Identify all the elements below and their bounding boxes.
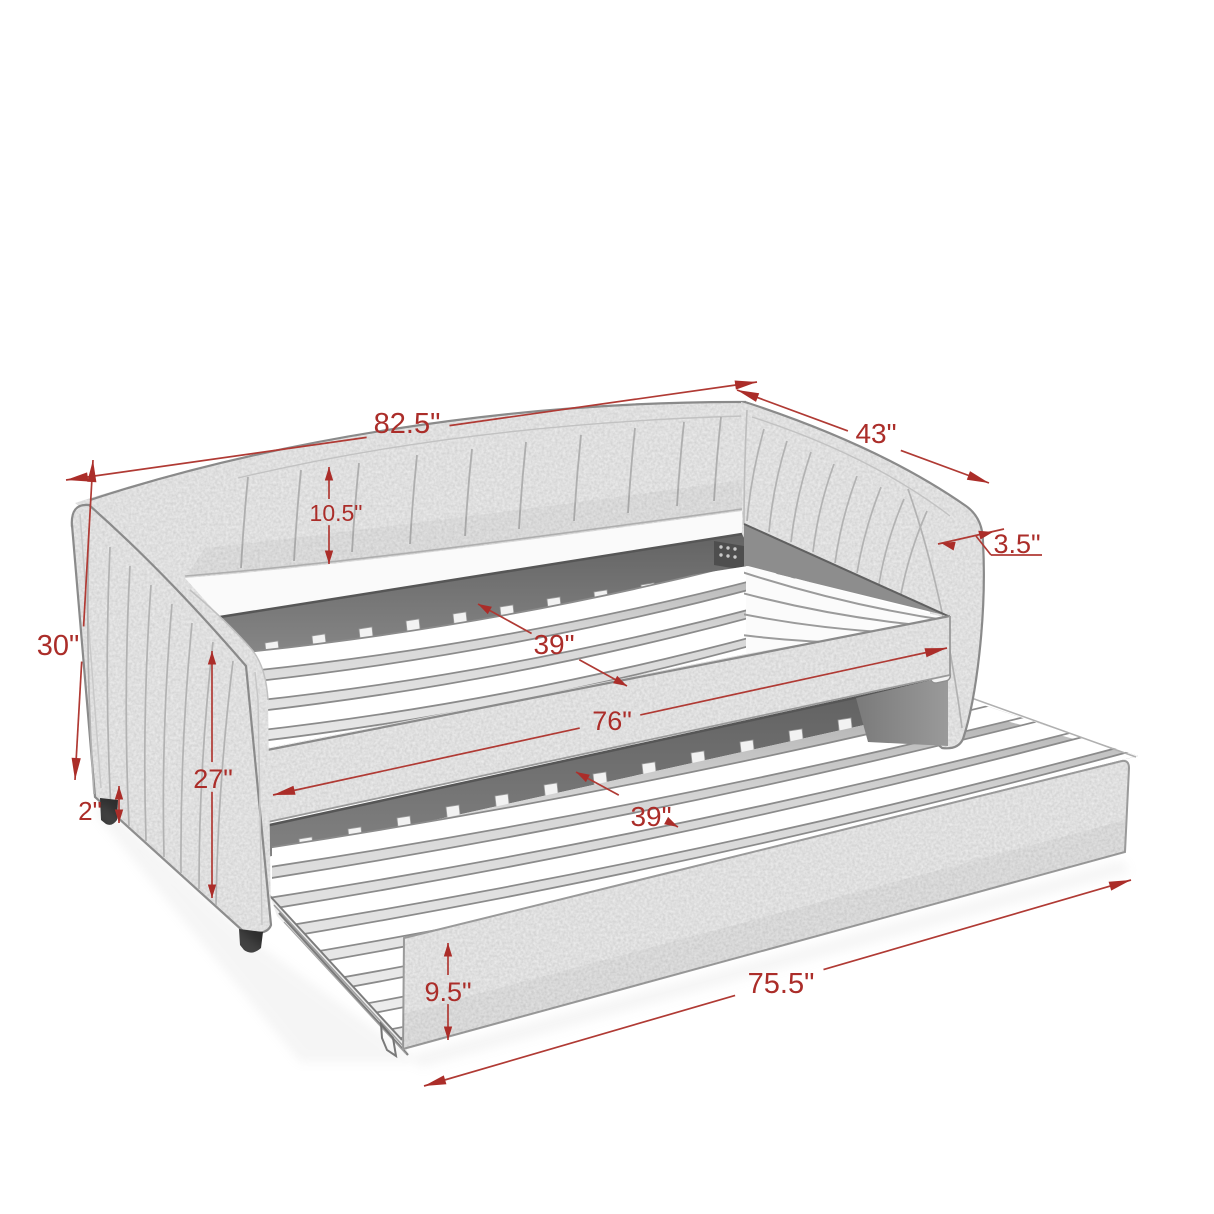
svg-text:30": 30": [37, 630, 80, 662]
svg-text:39": 39": [533, 629, 574, 660]
svg-text:10.5": 10.5": [310, 500, 363, 526]
svg-text:39": 39": [630, 801, 671, 832]
svg-text:27": 27": [193, 764, 233, 794]
svg-text:75.5": 75.5": [748, 968, 815, 1000]
svg-text:9.5": 9.5": [424, 977, 471, 1007]
svg-text:82.5": 82.5": [374, 408, 441, 440]
svg-text:3.5": 3.5": [993, 529, 1040, 559]
svg-text:43": 43": [855, 418, 896, 449]
svg-text:2": 2": [78, 796, 102, 826]
svg-text:76": 76": [592, 706, 632, 736]
